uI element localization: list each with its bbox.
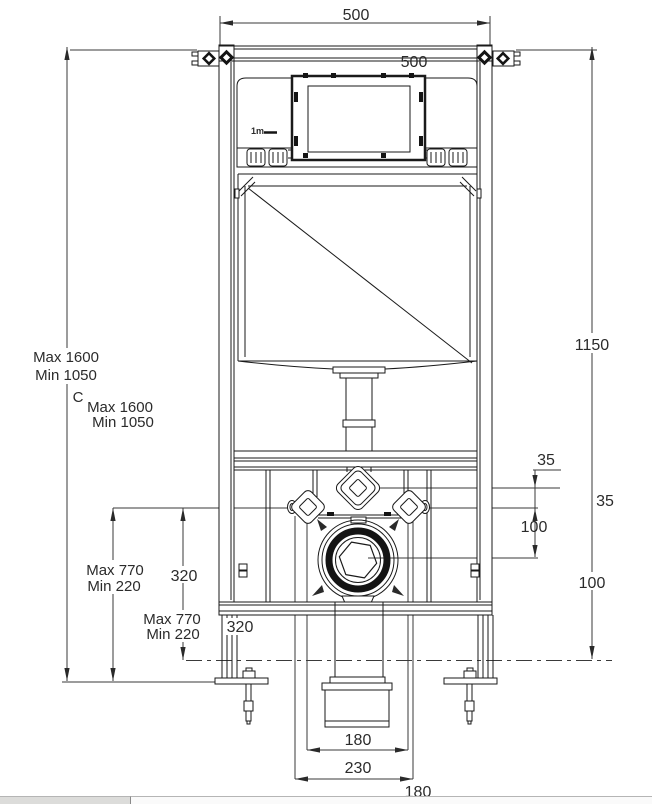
dim-inlet-offset-a: 35 [537, 452, 555, 469]
cistern-tank [235, 174, 481, 378]
dim-outlet-offset-a: 100 [521, 519, 548, 536]
tank-diagonal-brace [248, 188, 472, 363]
dim-outlet-offset-b: 100 [579, 575, 606, 592]
water-inlet-elbow [334, 464, 382, 512]
dim-install-max-a: Max 1600 [33, 349, 99, 366]
dim-elbow-height-b: 320 [227, 619, 254, 636]
dim-width-inner: 500 [401, 54, 428, 71]
brand-logo: 1m [251, 126, 264, 136]
dim-height-overall: 1150 [575, 337, 610, 354]
waste-outlet [312, 517, 404, 603]
dim-pipe-span: 230 [345, 760, 372, 777]
drawing-canvas: 1m 500 500 1150 Max 1600 Min 1050 C Max … [0, 0, 652, 804]
dim-elbow-height-a: 320 [171, 568, 198, 585]
technical-drawing-page: 1m 500 500 1150 Max 1600 Min 1050 C Max … [0, 0, 652, 804]
dim-install-min-a: Min 1050 [35, 367, 97, 384]
outlet-plug-hexagon [339, 542, 376, 578]
dim-install-min-b: Min 1050 [92, 414, 154, 431]
dim-fixing-span-a: 180 [345, 732, 372, 749]
dim-width-top: 500 [343, 7, 370, 24]
dim-inlet-offset-b: 35 [596, 493, 614, 510]
dim-bracket-max-a: Max 770 [86, 562, 144, 579]
bottom-window-edge [0, 797, 652, 804]
section-mark-c: C [73, 389, 84, 406]
outlet-drop-pipe [322, 602, 392, 727]
dim-bracket-min-a: Min 220 [87, 578, 140, 595]
bottom-rail [219, 602, 493, 678]
cistern-housing: 1m [237, 73, 477, 167]
dim-bracket-min-b: Min 220 [146, 626, 199, 643]
